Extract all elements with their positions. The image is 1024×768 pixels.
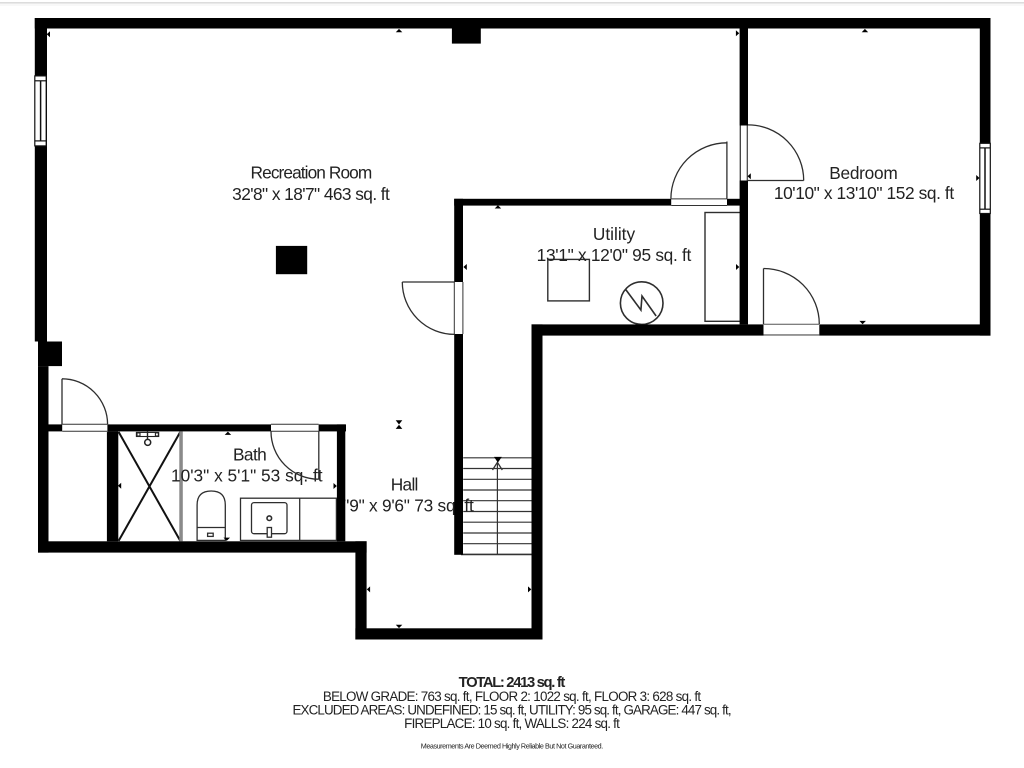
svg-text:7'9" x 9'6" 73 sq. ft: 7'9" x 9'6" 73 sq. ft <box>337 496 474 516</box>
svg-text:Recreation Room: Recreation Room <box>251 163 373 183</box>
svg-text:Measurements Are Deemed Highly: Measurements Are Deemed Highly Reliable … <box>421 742 604 751</box>
svg-text:Bath: Bath <box>233 445 267 465</box>
svg-text:13'1" x 12'0" 95 sq. ft: 13'1" x 12'0" 95 sq. ft <box>537 245 692 265</box>
svg-text:32'8" x 18'7" 463 sq. ft: 32'8" x 18'7" 463 sq. ft <box>232 184 390 204</box>
svg-text:FIREPLACE: 10 sq. ft, WALLS: 2: FIREPLACE: 10 sq. ft, WALLS: 224 sq. ft <box>404 716 620 731</box>
svg-text:10'10" x 13'10" 152 sq. ft: 10'10" x 13'10" 152 sq. ft <box>774 183 954 203</box>
svg-text:Utility: Utility <box>593 224 636 244</box>
svg-text:Bedroom: Bedroom <box>829 163 898 183</box>
svg-text:Hall: Hall <box>391 475 419 495</box>
